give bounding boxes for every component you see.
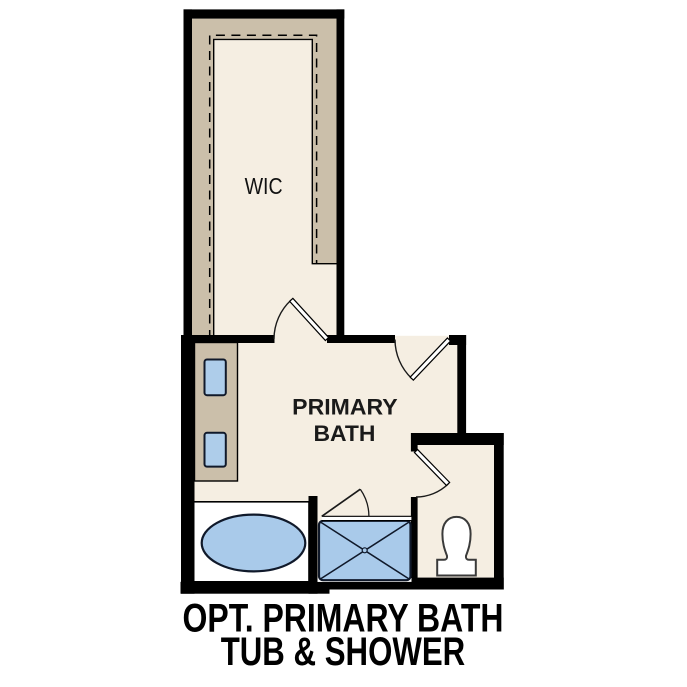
svg-text:TUB & SHOWER: TUB & SHOWER [221, 630, 465, 674]
svg-text:BATH: BATH [314, 421, 376, 446]
svg-text:WIC: WIC [245, 173, 283, 199]
svg-text:PRIMARY: PRIMARY [292, 394, 398, 419]
